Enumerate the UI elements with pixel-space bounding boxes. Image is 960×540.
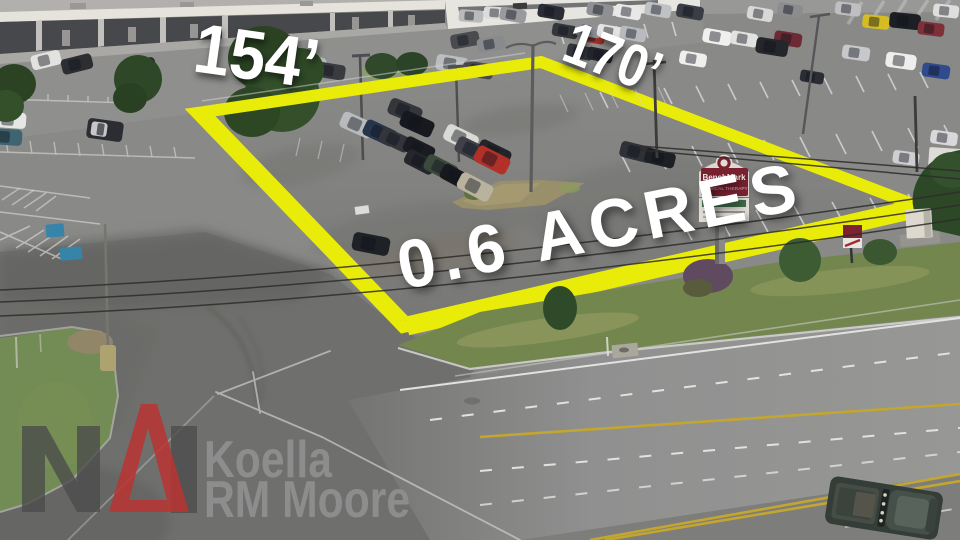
svg-text:RM Moore: RM Moore xyxy=(204,471,410,529)
